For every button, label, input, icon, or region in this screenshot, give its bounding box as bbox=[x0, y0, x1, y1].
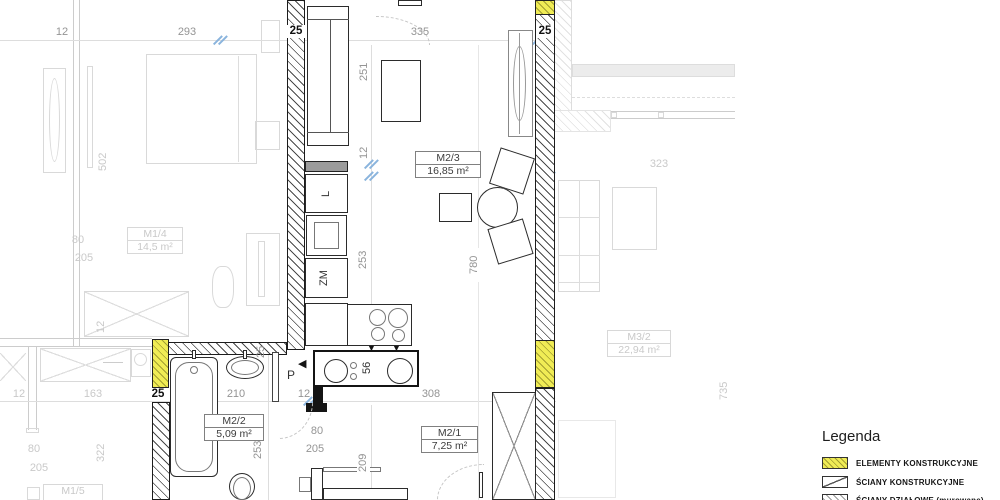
bed-nightstand bbox=[299, 477, 311, 492]
dim-label: 253 bbox=[357, 243, 370, 277]
partition-hatch-swatch-icon bbox=[822, 494, 848, 500]
legend-item: ŚCIANY DZIAŁOWE (murowane) bbox=[822, 494, 984, 500]
wall-bathroom-top bbox=[168, 342, 287, 355]
neighbor-window-handle-1 bbox=[611, 112, 617, 118]
room-label-m21: M2/1 7,25 m² bbox=[421, 426, 478, 453]
dim-label: 251 bbox=[358, 55, 371, 89]
structural-element-left bbox=[152, 339, 169, 388]
dim-label-faint: 322 bbox=[95, 436, 108, 470]
neighbor-table-m32 bbox=[612, 187, 657, 250]
legend: Legenda ELEMENTY KONSTRUKCYJNE ŚCIANY KO… bbox=[820, 424, 1000, 500]
dim-label: 12 bbox=[50, 26, 74, 39]
sink-tap-dot-2 bbox=[350, 373, 357, 380]
neighbor-sill-hatch bbox=[554, 110, 611, 132]
dim-label-faint: 502 bbox=[97, 144, 110, 180]
neighbor-bed-line bbox=[238, 56, 239, 162]
dim-label-wall: 25 bbox=[148, 388, 168, 401]
wall-right-lower bbox=[535, 388, 555, 500]
diagonal-hatch-swatch-icon bbox=[822, 476, 848, 488]
neighbor-window-band bbox=[607, 111, 735, 119]
bedroom-door-arc bbox=[437, 464, 484, 500]
bathtub-tap bbox=[192, 350, 196, 359]
dim-label-wall: 25 bbox=[536, 25, 554, 38]
neighbor-wall-left bbox=[73, 0, 80, 346]
dim-label: 210 bbox=[221, 388, 251, 401]
neighbor-sofa-line-h1 bbox=[558, 217, 600, 218]
neighbor-balcony-dash bbox=[572, 97, 735, 98]
down-arrow-icon: ▼ bbox=[367, 344, 376, 353]
sofa-armrest-top bbox=[307, 19, 349, 20]
neighbor-chair bbox=[212, 266, 234, 308]
sofa-armrest-bottom bbox=[307, 132, 349, 133]
neighbor-arrow-line bbox=[103, 362, 123, 363]
neighbor-nightstand-2 bbox=[255, 121, 280, 150]
chair-3 bbox=[439, 193, 472, 222]
entry-arrow-icon: ◀ bbox=[298, 360, 306, 369]
kitchen-shelf bbox=[305, 161, 348, 172]
room-area: 22,94 m² bbox=[607, 343, 671, 357]
dim-label-faint: 323 bbox=[641, 158, 677, 171]
dim-line-top bbox=[0, 40, 556, 41]
legend-item-label: ELEMENTY KONSTRUKCYJNE bbox=[856, 459, 978, 468]
wall-bathroom-right bbox=[272, 352, 279, 402]
neighbor-bed bbox=[146, 54, 257, 164]
dim-line-vert-bath bbox=[268, 345, 269, 500]
dim-label: 12 bbox=[358, 142, 371, 164]
legend-title: Legenda bbox=[822, 428, 880, 445]
bed-headboard bbox=[311, 468, 323, 500]
dim-label: 12 bbox=[294, 388, 314, 401]
wall-left bbox=[287, 0, 305, 350]
legend-item: ŚCIANY KONSTRUKCYJNE bbox=[822, 476, 964, 488]
kitchen-oven-inner bbox=[314, 222, 339, 249]
neighbor-fixture bbox=[27, 487, 40, 500]
dim-label: 293 bbox=[170, 26, 204, 39]
hob-burner-4 bbox=[392, 329, 405, 342]
neighbor-sofa-line-v bbox=[579, 180, 580, 292]
dim-label-faint: 205 bbox=[22, 462, 56, 475]
room-id: M3/2 bbox=[607, 330, 671, 344]
dim-label-faint: 735 bbox=[718, 374, 731, 408]
neighbor-opening-mark bbox=[0, 353, 26, 381]
dim-label: 80 bbox=[305, 425, 329, 438]
room-label-m22: M2/2 5,09 m² bbox=[204, 414, 264, 441]
room-id: M1/4 bbox=[127, 227, 183, 241]
sofa bbox=[307, 6, 349, 146]
hob-burner-3 bbox=[371, 327, 385, 341]
room-area: 7,25 m² bbox=[421, 439, 478, 453]
room-id: M1/5 bbox=[43, 484, 103, 500]
neighbor-window2 bbox=[87, 66, 93, 168]
toilet-inner bbox=[233, 477, 251, 500]
bathtub-drain bbox=[190, 366, 198, 374]
dim-line-vert-bedroom bbox=[371, 405, 372, 500]
sofa-back-line bbox=[330, 19, 331, 132]
neighbor-washer-drum bbox=[134, 353, 147, 366]
down-arrow-icon: ▼ bbox=[392, 344, 401, 353]
dim-label: 335 bbox=[403, 26, 437, 39]
neighbor-wall-endcap bbox=[26, 428, 39, 433]
room-label-m32: M3/2 22,94 m² bbox=[607, 330, 671, 357]
dim-label: 25 bbox=[255, 340, 268, 364]
neighbor-nightstand-1 bbox=[261, 20, 280, 53]
dim-label: 56 bbox=[361, 355, 373, 381]
neighbor-wall-bottomleft bbox=[0, 338, 152, 347]
washbasin-tap bbox=[243, 350, 247, 359]
wardrobe bbox=[492, 392, 536, 500]
neighbor-furniture-br bbox=[558, 420, 616, 498]
room-id: M2/2 bbox=[204, 414, 264, 428]
room-area: 5,09 m² bbox=[204, 427, 264, 441]
structural-element-top bbox=[535, 0, 555, 15]
hall-label: P bbox=[284, 369, 298, 382]
room-label-m14: M1/4 14,5 m² bbox=[127, 227, 183, 254]
dim-label-faint: 12 bbox=[95, 315, 108, 339]
neighbor-window-lens bbox=[49, 78, 60, 162]
legend-item-label: ŚCIANY KONSTRUKCYJNE bbox=[856, 478, 964, 487]
wall-right-upper bbox=[535, 14, 555, 342]
neighbor-monitor bbox=[258, 241, 265, 297]
dim-label: 205 bbox=[299, 443, 331, 456]
dim-label-faint: 163 bbox=[78, 388, 108, 401]
sink-basin-right bbox=[387, 358, 413, 384]
dim-line-vert-kitchen bbox=[371, 45, 372, 345]
structural-element-right bbox=[535, 340, 555, 388]
room-area: 16,85 m² bbox=[415, 164, 481, 178]
dim-label-faint: 12 bbox=[8, 388, 30, 401]
neighbor-wardrobe-m15 bbox=[40, 348, 131, 382]
room-id: M2/1 bbox=[421, 426, 478, 440]
room-label-m23: M2/3 16,85 m² bbox=[415, 151, 481, 178]
wall-bathroom-left bbox=[152, 402, 170, 500]
entry-door-leaf bbox=[398, 0, 422, 6]
neighbor-balcony-wall bbox=[572, 64, 735, 77]
dim-label: 209 bbox=[357, 446, 370, 480]
dim-label: 780 bbox=[468, 248, 481, 282]
dim-label-wall: 25 bbox=[287, 25, 305, 38]
sink-tap-dot-1 bbox=[350, 362, 357, 369]
dim-label-faint: 80 bbox=[66, 234, 90, 247]
bed bbox=[323, 488, 408, 500]
kitchen-cabinet bbox=[305, 303, 348, 346]
hob-burner-1 bbox=[369, 309, 386, 326]
neighbor-sofa-line-h2 bbox=[558, 255, 600, 256]
legend-item-label: ŚCIANY DZIAŁOWE (murowane) bbox=[856, 496, 984, 500]
hob-burner-2 bbox=[388, 308, 408, 328]
room-area: 14,5 m² bbox=[127, 240, 183, 254]
break-mark-icon bbox=[365, 170, 377, 182]
kitchen-fridge-label: L bbox=[320, 183, 333, 205]
break-mark-icon bbox=[214, 34, 226, 46]
bedroom-door-leaf bbox=[479, 472, 483, 498]
room-id: M2/3 bbox=[415, 151, 481, 165]
dim-label-faint: 80 bbox=[22, 443, 46, 456]
floor-plan-canvas: L ZM ▼ ▼ ◀ 12 293 25 335 25 2 bbox=[0, 0, 1000, 500]
balcony-door-line bbox=[519, 33, 520, 134]
kitchen-dishwasher-label: ZM bbox=[318, 263, 333, 293]
room-label-m15: M1/5 bbox=[43, 484, 103, 500]
yellow-hatch-swatch-icon bbox=[822, 457, 848, 469]
bed-shelf bbox=[323, 467, 381, 472]
dim-label: 308 bbox=[415, 388, 447, 401]
coffee-table bbox=[381, 60, 421, 122]
neighbor-sofa-line-h3 bbox=[558, 282, 600, 283]
sink-basin-left bbox=[324, 359, 348, 383]
neighbor-window-handle-2 bbox=[658, 112, 664, 118]
neighbor-wall-right bbox=[554, 0, 572, 113]
legend-item: ELEMENTY KONSTRUKCYJNE bbox=[822, 457, 978, 469]
dim-label-faint: 205 bbox=[68, 252, 100, 265]
